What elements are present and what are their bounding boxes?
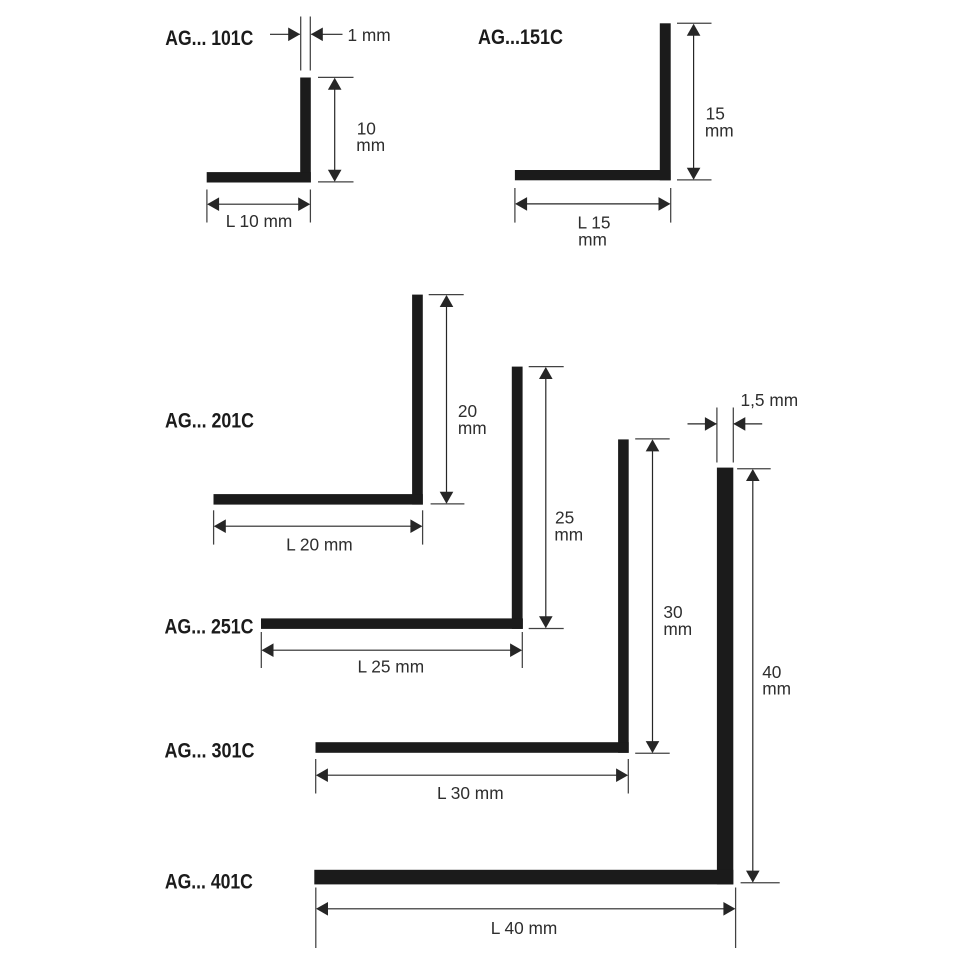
svg-text:mm: mm bbox=[554, 524, 583, 544]
svg-text:L 30 mm: L 30 mm bbox=[437, 783, 504, 803]
svg-text:1,5 mm: 1,5 mm bbox=[741, 390, 799, 410]
svg-text:AG... 201C: AG... 201C bbox=[165, 409, 254, 432]
svg-text:mm: mm bbox=[762, 679, 791, 699]
svg-text:AG... 251C: AG... 251C bbox=[165, 616, 254, 639]
svg-text:AG... 301C: AG... 301C bbox=[165, 740, 255, 763]
svg-text:mm: mm bbox=[705, 120, 734, 140]
svg-text:mm: mm bbox=[663, 619, 692, 639]
svg-text:mm: mm bbox=[458, 418, 487, 438]
svg-text:L 20 mm: L 20 mm bbox=[286, 534, 353, 554]
svg-text:mm: mm bbox=[578, 229, 607, 249]
svg-text:AG...151C: AG...151C bbox=[478, 26, 563, 49]
svg-text:AG... 401C: AG... 401C bbox=[165, 870, 253, 893]
svg-text:mm: mm bbox=[356, 135, 385, 155]
svg-text:L 25 mm: L 25 mm bbox=[358, 657, 425, 677]
svg-text:AG... 101C: AG... 101C bbox=[165, 27, 253, 50]
svg-text:L 10 mm: L 10 mm bbox=[226, 211, 293, 231]
svg-text:1 mm: 1 mm bbox=[348, 25, 391, 45]
svg-text:L 40 mm: L 40 mm bbox=[491, 918, 558, 938]
